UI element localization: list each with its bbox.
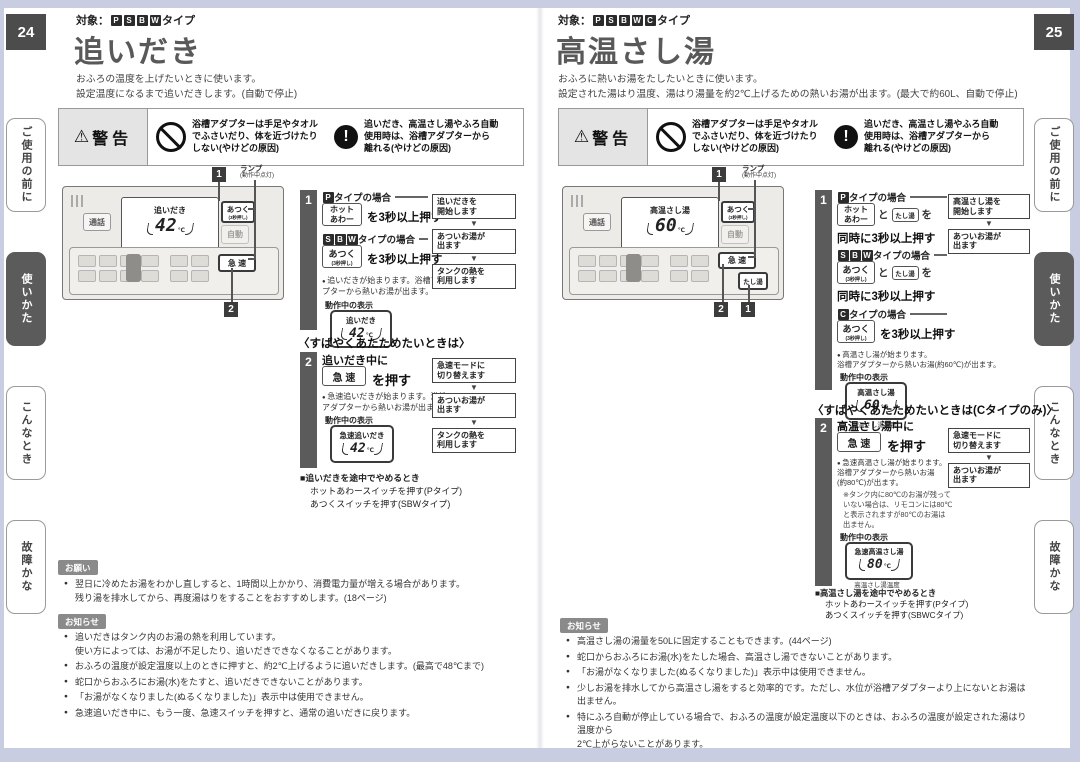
- notice-badge: お知らせ: [560, 618, 608, 633]
- callout-2: 2: [224, 302, 238, 317]
- note-item: 特にふろ自動が停止している場合で、おふろの温度が設定温度以下のときは、おふろの温…: [566, 711, 1028, 752]
- page-number-left: 24: [6, 14, 46, 50]
- lcd-temp-unit: ℃: [678, 227, 685, 234]
- joiner-text: と: [878, 207, 889, 222]
- display-temp-value: 42: [350, 442, 366, 455]
- tub-curve-icon: [685, 223, 694, 235]
- lamp-subtext: (動作中点灯): [240, 173, 274, 180]
- lcd-temp-unit: ℃: [178, 227, 185, 234]
- flow-box: 高温さし湯を 開始します: [948, 194, 1030, 219]
- type-badge-s: S: [606, 15, 617, 26]
- down-arrow-icon: ▼: [432, 254, 516, 264]
- talk-button: 通話: [583, 213, 611, 231]
- talk-button: 通話: [83, 213, 111, 231]
- warning-caution-seg: ! 追いだき、高温さし湯やふろ自動 使用時は、浴槽アダプターから 離れる(やけど…: [326, 109, 506, 165]
- speaker-vent: [571, 195, 585, 207]
- panel-buttons: [170, 255, 207, 282]
- warning-triangle-icon: ⚠: [574, 127, 589, 147]
- type-badge-c: C: [645, 15, 656, 26]
- display-temp: 42 ℃: [332, 442, 392, 455]
- hot-awa-button-ref: ホット あわー: [322, 203, 362, 226]
- press-instruction: 同時に3秒以上押す: [837, 230, 935, 246]
- quick-heading: 〈すばやくあたためたいときは(Cタイプのみ)〉: [812, 402, 1058, 418]
- down-arrow-icon: ▼: [432, 383, 516, 393]
- display-mode: 高温さし湯: [847, 387, 905, 398]
- case-label: タイプの場合: [849, 190, 906, 204]
- type-badge-p: P: [593, 15, 604, 26]
- tab-before-use-right: ご使用の前に: [1034, 118, 1074, 212]
- step1-bullet: 高温さし湯が始まります。 浴槽アダプターから熱いお湯(約60℃)が出ます。: [837, 350, 1022, 370]
- stop-line: あつくスイッチを押す(SBWタイプ): [300, 498, 462, 511]
- callout-1: 1: [212, 167, 226, 182]
- down-arrow-icon: ▼: [948, 453, 1030, 463]
- display-temp-unit: ℃: [367, 447, 374, 454]
- stop-title: ■高温さし湯を途中でやめるとき: [815, 588, 968, 599]
- panel-buttons: [578, 255, 657, 282]
- type-badge-b: B: [619, 15, 630, 26]
- warning-header: ⚠ 警告: [559, 109, 648, 165]
- up-down-buttons: [626, 254, 641, 282]
- auto-button: 自動: [721, 225, 749, 244]
- speaker-vent: [71, 195, 85, 207]
- target-prefix: 対象：: [558, 12, 591, 28]
- callout-line: [748, 285, 750, 302]
- callout-2: 2: [714, 302, 728, 317]
- lamp-text: ランプ: [240, 164, 274, 173]
- down-arrow-icon: ▼: [432, 418, 516, 428]
- rapid-button-ref: 急 速: [837, 432, 881, 452]
- atsuku-sublabel: (3秒押し): [845, 276, 866, 283]
- warning-title: 警告: [92, 125, 132, 149]
- atsuku-button-label: あつく: [227, 204, 250, 215]
- operation-display: 急速追いだき 42 ℃: [330, 425, 394, 463]
- display-temp-unit: ℃: [884, 563, 891, 570]
- flow-box: あついお湯が 出ます: [948, 463, 1030, 488]
- stop-line: あつくスイッチを押す(SBWCタイプ): [815, 610, 968, 621]
- tab-how-to-use-left: 使いかた: [6, 252, 46, 346]
- lcd-temperature: 42 ℃: [122, 217, 218, 235]
- type-badge-w: W: [632, 15, 643, 26]
- atsuku-sublabel: (3秒押し): [845, 335, 866, 342]
- display-temp-value: 80: [867, 558, 883, 571]
- flow-box: あついお湯が 出ます: [432, 229, 516, 254]
- atsuku-button: あつく (3秒押し): [721, 201, 755, 223]
- case-label: タイプの場合: [873, 248, 930, 262]
- step2-bar: 2: [815, 418, 832, 586]
- tab-trouble-right: 故障かな: [1034, 520, 1074, 614]
- rapid-button-ref: 急 速: [322, 366, 366, 386]
- warning-prohibit-text: 浴槽アダプターは手足やタオル でふさいだり、体を近づけたり しない(やけどの原因…: [192, 119, 318, 154]
- atsuku-button-sublabel: (3秒押し): [229, 215, 248, 221]
- note-item: 少しお湯を排水してから高温さし湯をすると効率的です。ただし、水位が浴槽アダプター…: [566, 682, 1028, 709]
- rapid-button: 急 速: [218, 254, 256, 272]
- prohibition-icon: [656, 122, 686, 152]
- tashiyu-button: たし湯: [738, 272, 768, 290]
- atsuku-button-ref: あつく (3秒押し): [837, 320, 875, 343]
- callout-line: [231, 268, 233, 302]
- step2-note: ※タンク内に80℃のお湯が残って いない場合は、リモコンには80℃ と表示されま…: [843, 490, 983, 530]
- center-fold: [536, 8, 544, 748]
- flow-box: あついお湯が 出ます: [432, 393, 516, 418]
- press-instruction: を3秒以上押す: [880, 326, 955, 342]
- type-badge-w: W: [150, 15, 161, 26]
- case-p: P タイプの場合: [322, 190, 428, 204]
- callout-line: [218, 182, 220, 201]
- note-item: 急速追いだき中に、もう一度、急速スイッチを押すと、通常の追いだきに戻ります。: [64, 707, 526, 721]
- type-badge-p: P: [838, 192, 849, 203]
- stop-note: ■追いだきを途中でやめるとき ホットあわースイッチを押す(Pタイプ) あつくスイ…: [300, 472, 462, 512]
- step1-flow: 高温さし湯を 開始します ▼ あついお湯が 出ます: [948, 194, 1030, 254]
- lcd-temperature: 60 ℃: [622, 217, 718, 235]
- flow-box: 急速モードに 切り替えます: [432, 358, 516, 383]
- type-badge-b: B: [850, 250, 861, 261]
- type-badge-s: S: [323, 234, 334, 245]
- type-badge-p: P: [323, 192, 334, 203]
- warning-prohibit-seg: 浴槽アダプターは手足やタオル でふさいだり、体を近づけたり しない(やけどの原因…: [648, 109, 826, 165]
- atsuku-button-ref: あつく (3秒押し): [322, 245, 362, 268]
- warning-caution-text: 追いだき、高温さし湯やふろ自動 使用時は、浴槽アダプターから 離れる(やけどの原…: [864, 119, 998, 154]
- note-item: 追いだきはタンク内のお湯の熱を利用しています。 使い方によっては、お湯が不足した…: [64, 631, 526, 658]
- step1-flow: 追いだきを 開始します ▼ あついお湯が 出ます ▼ タンクの熱を 利用します: [432, 194, 516, 289]
- flow-box: 追いだきを 開始します: [432, 194, 516, 219]
- atsuku-button: あつく (3秒押し): [221, 201, 255, 223]
- exclamation-icon: !: [834, 125, 858, 149]
- tab-in-this-case-left: こんなとき: [6, 386, 46, 480]
- press-instruction: を押す: [887, 436, 926, 455]
- atsuku-button-label: あつく: [727, 204, 750, 215]
- type-badge-s: S: [124, 15, 135, 26]
- type-badge-p: P: [111, 15, 122, 26]
- lamp-stub: [748, 208, 755, 210]
- auto-button: 自動: [221, 225, 249, 244]
- lamp-subtext: (動作中点灯): [742, 173, 776, 180]
- target-prefix: 対象：: [76, 12, 109, 28]
- callout-line: [722, 264, 724, 302]
- note-item: おふろの温度が設定温度以上のときに押すと、約2℃上げるように追いだきします。(最…: [64, 660, 526, 674]
- target-types-line: 対象： P S B W タイプ: [76, 12, 195, 28]
- tab-how-to-use-right: 使いかた: [1034, 252, 1074, 346]
- flow-box: あついお湯が 出ます: [948, 229, 1030, 254]
- exclamation-icon: !: [334, 125, 358, 149]
- display-mode: 急速高温さし湯: [847, 547, 911, 557]
- lamp-label: ランプ (動作中点灯): [240, 164, 274, 180]
- operation-display: 急速高温さし湯 80 ℃: [845, 542, 913, 580]
- page-title: 追いだき: [74, 27, 202, 71]
- target-types-line: 対象： P S B W C タイプ: [558, 12, 690, 28]
- tub-curve-icon: [374, 443, 383, 455]
- lcd-temp-value: 42: [155, 217, 177, 235]
- sub-panel: 急 速: [69, 247, 279, 295]
- tub-curve-icon: [341, 443, 350, 455]
- callout-line: [718, 182, 720, 201]
- atsuku-label: あつく: [328, 247, 355, 260]
- joiner-text: と: [878, 265, 889, 280]
- case-c: C タイプの場合: [837, 307, 947, 321]
- lamp-line: [254, 180, 256, 260]
- case-rule: [419, 238, 428, 240]
- case-label: タイプの場合: [358, 232, 415, 246]
- warning-prohibit-text: 浴槽アダプターは手足やタオル でふさいだり、体を近づけたり しない(やけどの原因…: [692, 119, 818, 154]
- lcd-display: 追いだき 42 ℃: [121, 197, 219, 251]
- lamp-stub: [248, 208, 255, 210]
- warning-title: 警告: [592, 125, 632, 149]
- type-badge-b: B: [335, 234, 346, 245]
- tub-curve-icon: [858, 559, 867, 571]
- warning-prohibit-seg: 浴槽アダプターは手足やタオル でふさいだり、体を近づけたり しない(やけどの原因…: [148, 109, 326, 165]
- panel-buttons: [670, 255, 707, 282]
- note-item: 高温さし湯の湯量を50Lに固定することもできます。(44ページ): [566, 635, 1028, 649]
- page-description: おふろに熱いお湯をたしたいときに使います。 設定された湯はり温度、湯はり湯量を約…: [558, 72, 1028, 102]
- stop-line: ホットあわースイッチを押す(Pタイプ): [815, 599, 968, 610]
- quick-heading: 〈すばやくあたためたいときは〉: [298, 335, 471, 351]
- type-badge-b: B: [137, 15, 148, 26]
- rapid-button: 急 速: [718, 252, 756, 269]
- atsuku-label: あつく: [842, 322, 869, 335]
- notice-list: 高温さし湯の湯量を50Lに固定することもできます。(44ページ) 蛇口からおふろ…: [566, 635, 1028, 753]
- prohibition-icon: [156, 122, 186, 152]
- stop-line: ホットあわースイッチを押す(Pタイプ): [300, 485, 462, 498]
- display-mode: 追いだき: [332, 315, 390, 326]
- lamp-text: ランプ: [742, 164, 776, 173]
- step2-bar: 2: [300, 352, 317, 468]
- note-item: 蛇口からおふろにお湯(水)をたすと、追いだきできないことがあります。: [64, 676, 526, 690]
- lcd-temp-value: 60: [655, 217, 677, 235]
- type-badge-c: C: [838, 309, 849, 320]
- tashiyu-button-ref: たし湯: [892, 266, 919, 280]
- page-number-right: 25: [1034, 14, 1074, 50]
- stop-note: ■高温さし湯を途中でやめるとき ホットあわースイッチを押す(Pタイプ) あつくス…: [815, 588, 968, 622]
- lamp-label: ランプ (動作中点灯): [742, 164, 776, 180]
- tashiyu-button-ref: たし湯: [892, 208, 919, 222]
- up-down-buttons: [126, 254, 141, 282]
- flow-box: タンクの熱を 利用します: [432, 264, 516, 289]
- warning-box: ⚠ 警告 浴槽アダプターは手足やタオル でふさいだり、体を近づけたり しない(や…: [58, 108, 524, 166]
- flow-box: 急速モードに 切り替えます: [948, 428, 1030, 453]
- down-arrow-icon: ▼: [948, 219, 1030, 229]
- warning-triangle-icon: ⚠: [74, 127, 89, 147]
- manual-spread: { "icons": {"warning_triangle":"⚠", "exc…: [0, 0, 1080, 762]
- case-label: タイプの場合: [334, 190, 391, 204]
- lamp-stub: [248, 258, 255, 260]
- request-list: 翌日に冷めたお湯をわかし直しすると、1時間以上かかり、消費電力量が増える場合があ…: [64, 578, 524, 607]
- button-combo: あつく (3秒押し) と たし湯 を: [837, 261, 932, 284]
- page-description: おふろの温度を上げたいときに使います。 設定温度になるまで追いだきします。(自動…: [76, 72, 526, 102]
- tub-curve-icon: [146, 223, 155, 235]
- case-rule: [395, 196, 428, 198]
- press-instruction: 同時に3秒以上押す: [837, 288, 935, 304]
- remote-control-illustration: 高温さし湯 60 ℃ 通話 あつく (3秒押し) 自動 急 速 たし湯: [562, 186, 784, 300]
- button-combo: ホット あわー と たし湯 を: [837, 203, 932, 226]
- callout-1: 1: [712, 167, 726, 182]
- tab-in-this-case-right: こんなとき: [1034, 386, 1074, 480]
- case-rule: [910, 196, 947, 198]
- warning-box: ⚠ 警告 浴槽アダプターは手足やタオル でふさいだり、体を近づけたり しない(や…: [558, 108, 1024, 166]
- note-item: 翌日に冷めたお湯をわかし直しすると、1時間以上かかり、消費電力量が増える場合があ…: [64, 578, 524, 605]
- note-item: 「お湯がなくなりました(ぬるくなりました)」表示中は使用できません。: [64, 691, 526, 705]
- tab-before-use-left: ご使用の前に: [6, 118, 46, 212]
- lcd-display: 高温さし湯 60 ℃: [621, 197, 719, 251]
- panel-buttons: [78, 255, 157, 282]
- remote-control-illustration: 追いだき 42 ℃ 通話 あつく (3秒押し) 自動 急 速: [62, 186, 284, 300]
- atsuku-button-ref: あつく (3秒押し): [837, 261, 875, 284]
- note-item: 「お湯がなくなりました(ぬるくなりました)」表示中は使用できません。: [566, 666, 1028, 680]
- case-sbw: S B W タイプの場合: [837, 248, 947, 262]
- press-instruction: を押す: [372, 370, 411, 389]
- type-badge-w: W: [347, 234, 358, 245]
- type-badge-s: S: [838, 250, 849, 261]
- flow-box: タンクの熱を 利用します: [432, 428, 516, 453]
- hot-awa-button-ref: ホット あわー: [837, 203, 875, 226]
- warning-caution-seg: ! 追いだき、高温さし湯やふろ自動 使用時は、浴槽アダプターから 離れる(やけど…: [826, 109, 1006, 165]
- step2-flow: 急速モードに 切り替えます ▼ あついお湯が 出ます ▼ タンクの熱を 利用しま…: [432, 358, 516, 453]
- step1-bar: 1: [300, 190, 317, 330]
- target-suffix: タイプ: [162, 12, 195, 28]
- tub-curve-icon: [185, 223, 194, 235]
- page-title: 高温さし湯: [556, 27, 716, 71]
- warning-caution-text: 追いだき、高温さし湯やふろ自動 使用時は、浴槽アダプターから 離れる(やけどの原…: [364, 119, 498, 154]
- note-item: 蛇口からおふろにお湯(水)をたした場合、高温さし湯できないことがあります。: [566, 651, 1028, 665]
- step1-bar: 1: [815, 190, 832, 390]
- type-badge-w: W: [862, 250, 873, 261]
- warning-header: ⚠ 警告: [59, 109, 148, 165]
- tab-trouble-left: 故障かな: [6, 520, 46, 614]
- stop-title: ■追いだきを途中でやめるとき: [300, 472, 462, 485]
- atsuku-label: あつく: [842, 263, 869, 276]
- lamp-line: [754, 180, 756, 258]
- notice-badge: お知らせ: [58, 614, 106, 629]
- display-mode: 急速追いだき: [332, 430, 392, 441]
- atsuku-button-sublabel: (3秒押し): [729, 215, 748, 221]
- notice-list: 追いだきはタンク内のお湯の熱を利用しています。 使い方によっては、お湯が不足した…: [64, 631, 526, 722]
- target-suffix: タイプ: [657, 12, 690, 28]
- atsuku-sublabel: (3秒押し): [331, 260, 352, 267]
- case-sbw: S B W タイプの場合: [322, 232, 428, 246]
- lamp-stub: [748, 256, 755, 258]
- case-rule: [934, 254, 947, 256]
- tail-text: を: [922, 265, 933, 280]
- step2-flow: 急速モードに 切り替えます ▼ あついお湯が 出ます: [948, 428, 1030, 488]
- tub-curve-icon: [891, 559, 900, 571]
- display-temp: 80 ℃: [847, 558, 911, 571]
- tail-text: を: [922, 207, 933, 222]
- down-arrow-icon: ▼: [432, 219, 516, 229]
- case-p: P タイプの場合: [837, 190, 947, 204]
- case-rule: [910, 313, 947, 315]
- request-badge: お願い: [58, 560, 98, 575]
- tub-curve-icon: [646, 223, 655, 235]
- callout-1b: 1: [741, 302, 755, 317]
- case-label: タイプの場合: [849, 307, 906, 321]
